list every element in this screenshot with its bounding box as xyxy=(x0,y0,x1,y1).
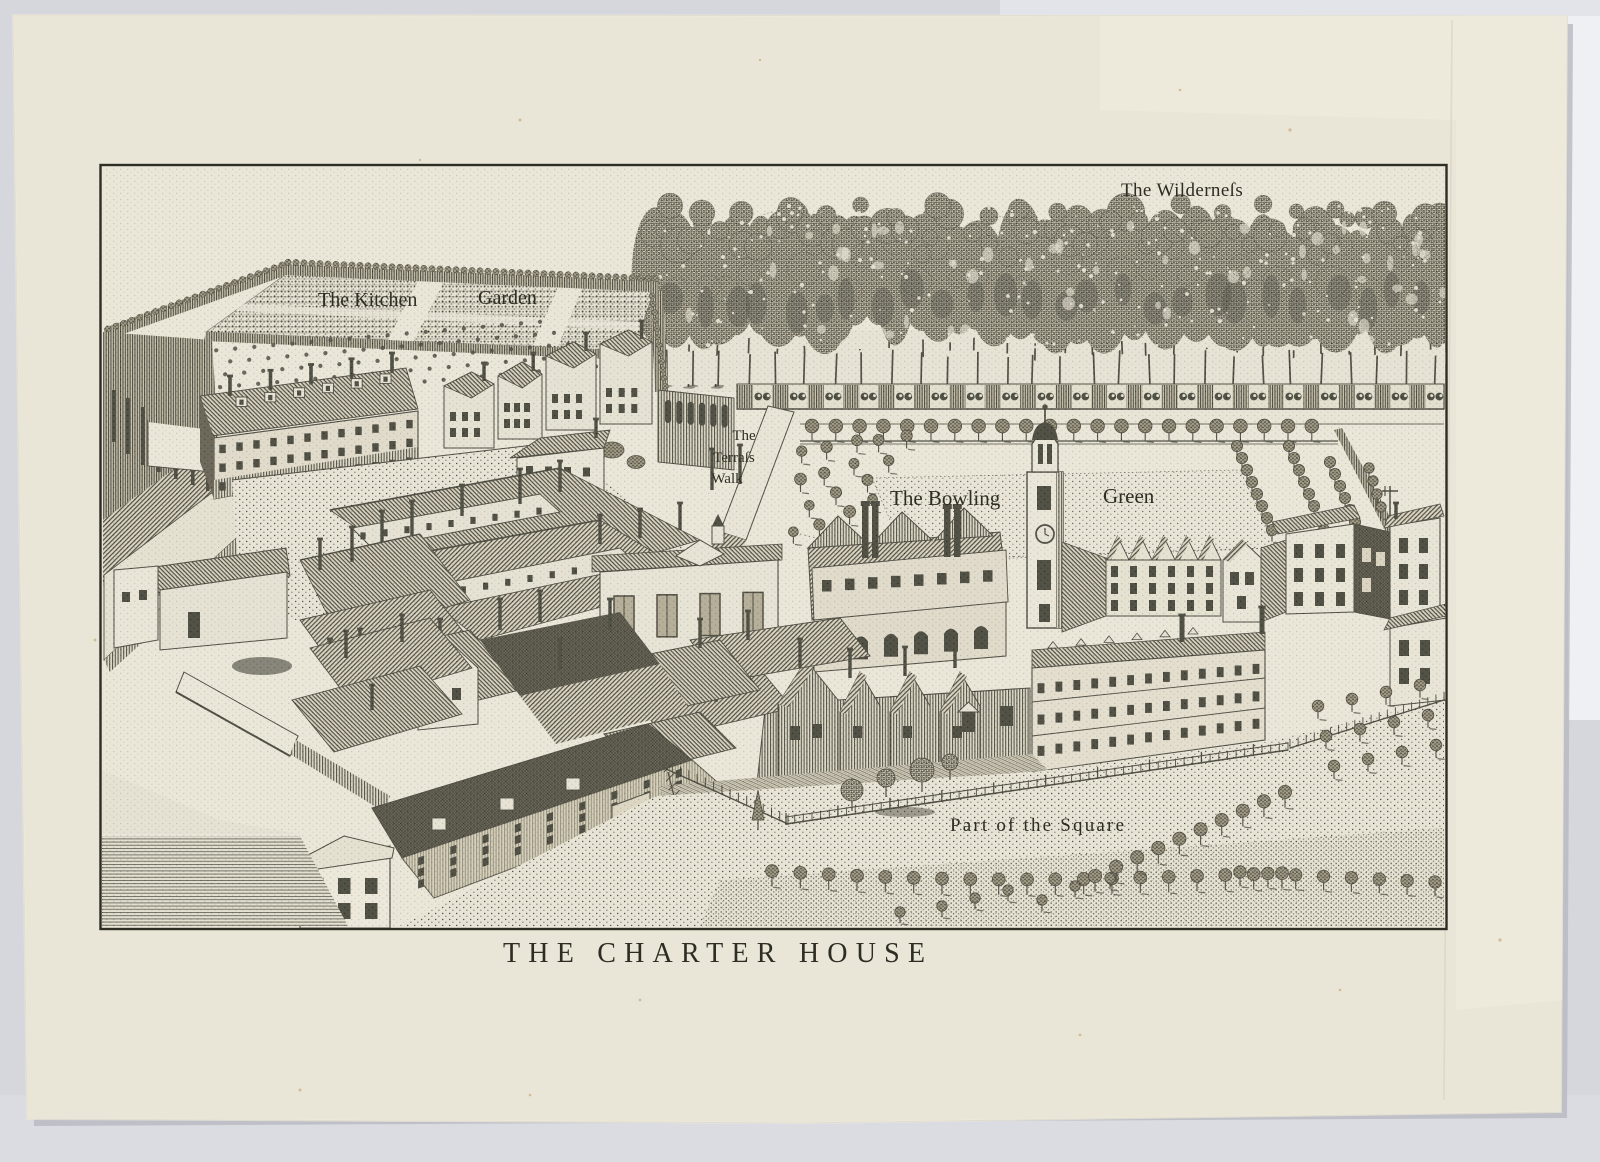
svg-text:Part of the Square: Part of the Square xyxy=(950,815,1124,836)
svg-text:Garden: Garden xyxy=(478,287,537,309)
svg-text:The Kitchen: The Kitchen xyxy=(318,289,417,311)
svg-text:The: The xyxy=(732,428,756,444)
svg-text:The Bowling: The Bowling xyxy=(890,486,1001,510)
svg-text:Terraſs: Terraſs xyxy=(713,450,755,466)
svg-text:THE CHARTER HOUSE: THE CHARTER HOUSE xyxy=(503,938,925,969)
svg-text:Green: Green xyxy=(1103,484,1155,508)
svg-text:Walk: Walk xyxy=(711,471,743,487)
svg-text:The Wilderneſs: The Wilderneſs xyxy=(1121,180,1243,201)
